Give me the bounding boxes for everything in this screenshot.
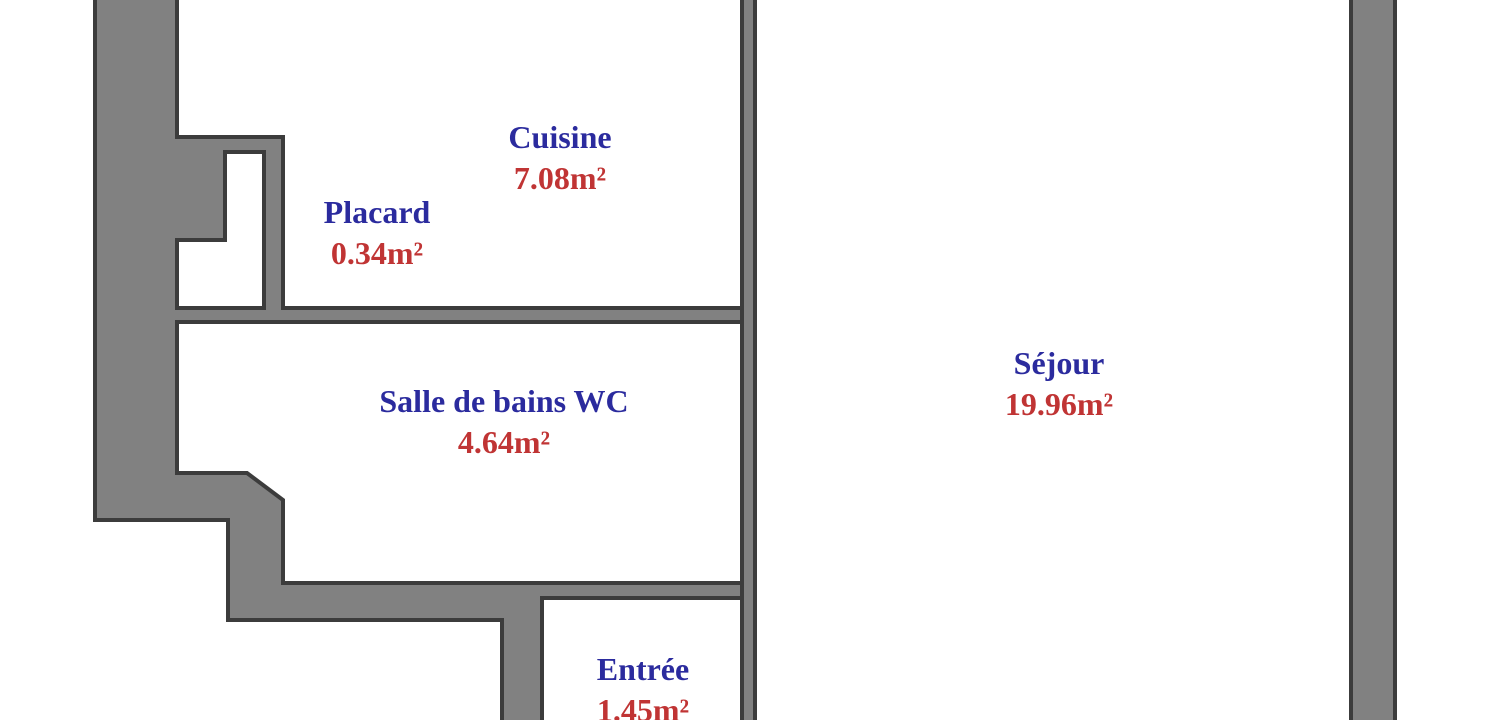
- partition-wall-sejour: [742, 0, 755, 720]
- room-name-entree: Entrée: [473, 649, 813, 690]
- room-label-entree: Entrée 1.45m²: [473, 649, 813, 720]
- room-area-placard: 0.34m²: [207, 233, 547, 274]
- room-area-salle-de-bains: 4.64m²: [334, 422, 674, 463]
- right-exterior-wall: [1351, 0, 1395, 720]
- room-area-sejour: 19.96m²: [889, 384, 1229, 425]
- room-name-salle-de-bains: Salle de bains WC: [334, 381, 674, 422]
- room-label-placard: Placard 0.34m²: [207, 192, 547, 274]
- room-name-cuisine: Cuisine: [390, 117, 730, 158]
- room-name-sejour: Séjour: [889, 343, 1229, 384]
- room-label-sejour: Séjour 19.96m²: [889, 343, 1229, 425]
- floor-plan-walls: [0, 0, 1500, 720]
- left-wall-complex: [95, 0, 742, 720]
- room-label-cuisine: Cuisine 7.08m²: [390, 117, 730, 199]
- room-name-placard: Placard: [207, 192, 547, 233]
- room-area-entree: 1.45m²: [473, 690, 813, 720]
- floor-plan: Cuisine 7.08m² Placard 0.34m² Salle de b…: [0, 0, 1500, 720]
- room-label-salle-de-bains: Salle de bains WC 4.64m²: [334, 381, 674, 463]
